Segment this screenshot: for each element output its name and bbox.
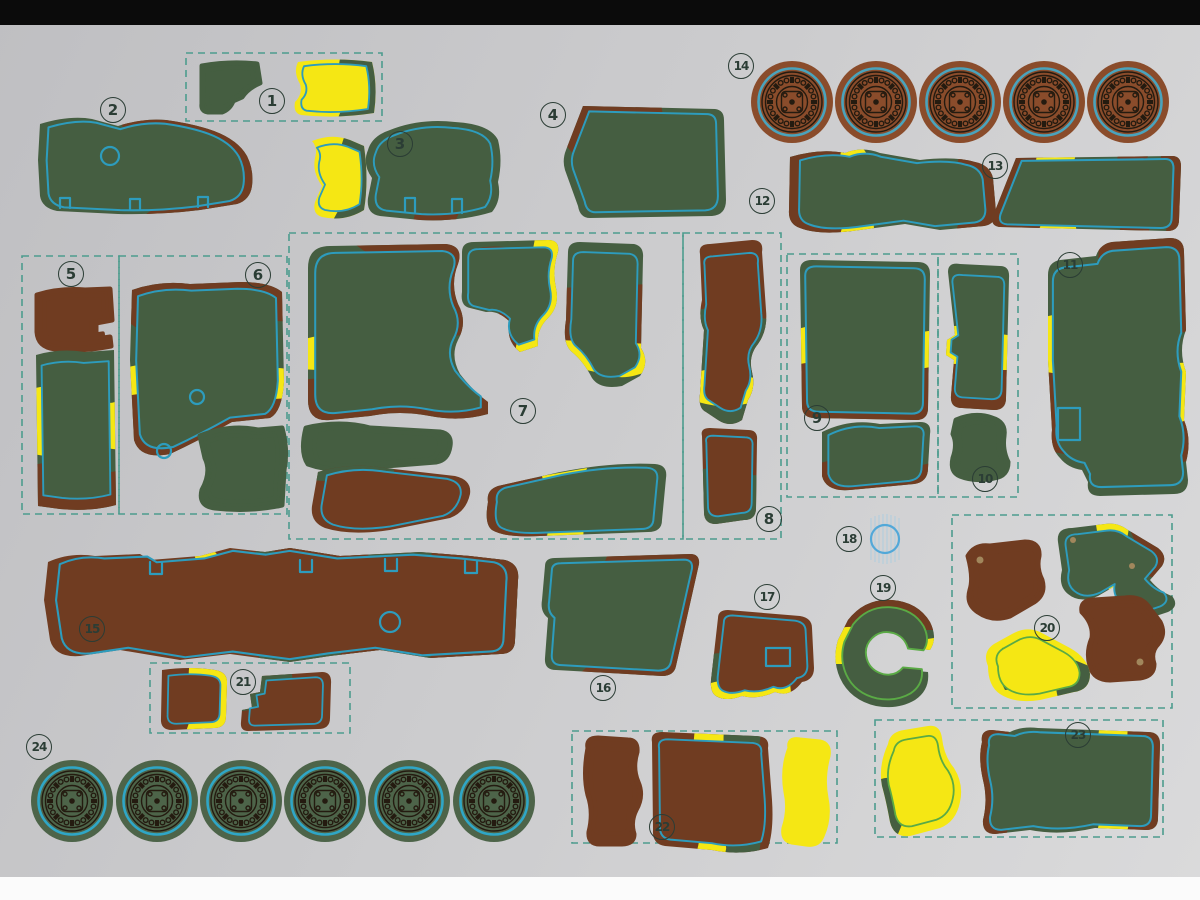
camo-decal-sheet-photo: 1 2 3 4 5 6 7 8 9 10 11 12 13 14 15 16 1… xyxy=(0,0,1200,900)
piece-number-3: 3 xyxy=(387,131,413,157)
decal-group-6 xyxy=(125,275,290,509)
piece-number-20: 20 xyxy=(1034,615,1060,641)
piece-number-22: 22 xyxy=(649,814,675,840)
decal-group-13 xyxy=(980,150,1185,238)
piece-number-11: 11 xyxy=(1057,252,1083,278)
piece-number-6: 6 xyxy=(245,262,271,288)
piece-number-21: 21 xyxy=(230,669,256,695)
piece-number-13: 13 xyxy=(982,153,1008,179)
piece-number-18: 18 xyxy=(836,526,862,552)
piece-number-23: 23 xyxy=(1065,722,1091,748)
piece-number-10: 10 xyxy=(972,466,998,492)
piece-number-19: 19 xyxy=(870,575,896,601)
piece-number-5: 5 xyxy=(58,261,84,287)
locating-hole xyxy=(977,557,984,564)
piece-number-2: 2 xyxy=(100,97,126,123)
decal-group-7 xyxy=(302,234,666,544)
mesh-hatch-lines xyxy=(871,514,899,564)
piece-number-7: 7 xyxy=(510,398,536,424)
piece-number-12: 12 xyxy=(749,188,775,214)
decal-group-15 xyxy=(44,543,532,668)
piece-number-16: 16 xyxy=(590,675,616,701)
piece-number-17: 17 xyxy=(754,584,780,610)
decal-group-18-mesh-disc xyxy=(871,514,899,564)
decal-group-5 xyxy=(28,289,120,515)
decal-group-2 xyxy=(38,114,258,218)
decal-group-12 xyxy=(780,140,1000,240)
decal-group-23 xyxy=(878,724,1165,842)
locating-hole xyxy=(1137,659,1144,666)
piece-number-1: 1 xyxy=(259,88,285,114)
decal-group-22 xyxy=(586,728,829,858)
decal-sheet-graphic xyxy=(0,0,1200,900)
decal-group-14-wheels xyxy=(751,61,1169,143)
decal-group-17 xyxy=(706,610,814,704)
decal-group-24-wheels xyxy=(31,760,535,842)
decal-group-16 xyxy=(542,548,705,682)
piece-number-14: 14 xyxy=(728,53,754,79)
piece-number-15: 15 xyxy=(79,616,105,642)
decal-group-8 xyxy=(692,240,772,532)
decal-group-19 xyxy=(828,592,942,707)
decal-group-20 xyxy=(968,518,1178,701)
locating-hole xyxy=(1070,537,1076,543)
decal-group-10 xyxy=(940,264,1015,480)
decal-group-4 xyxy=(560,100,726,218)
piece-number-9: 9 xyxy=(804,405,830,431)
decal-group-1 xyxy=(202,55,382,122)
decal-group-9 xyxy=(795,260,935,500)
piece-number-8: 8 xyxy=(756,506,782,532)
piece-number-4: 4 xyxy=(540,102,566,128)
piece-number-24: 24 xyxy=(26,734,52,760)
locating-hole xyxy=(1129,563,1135,569)
